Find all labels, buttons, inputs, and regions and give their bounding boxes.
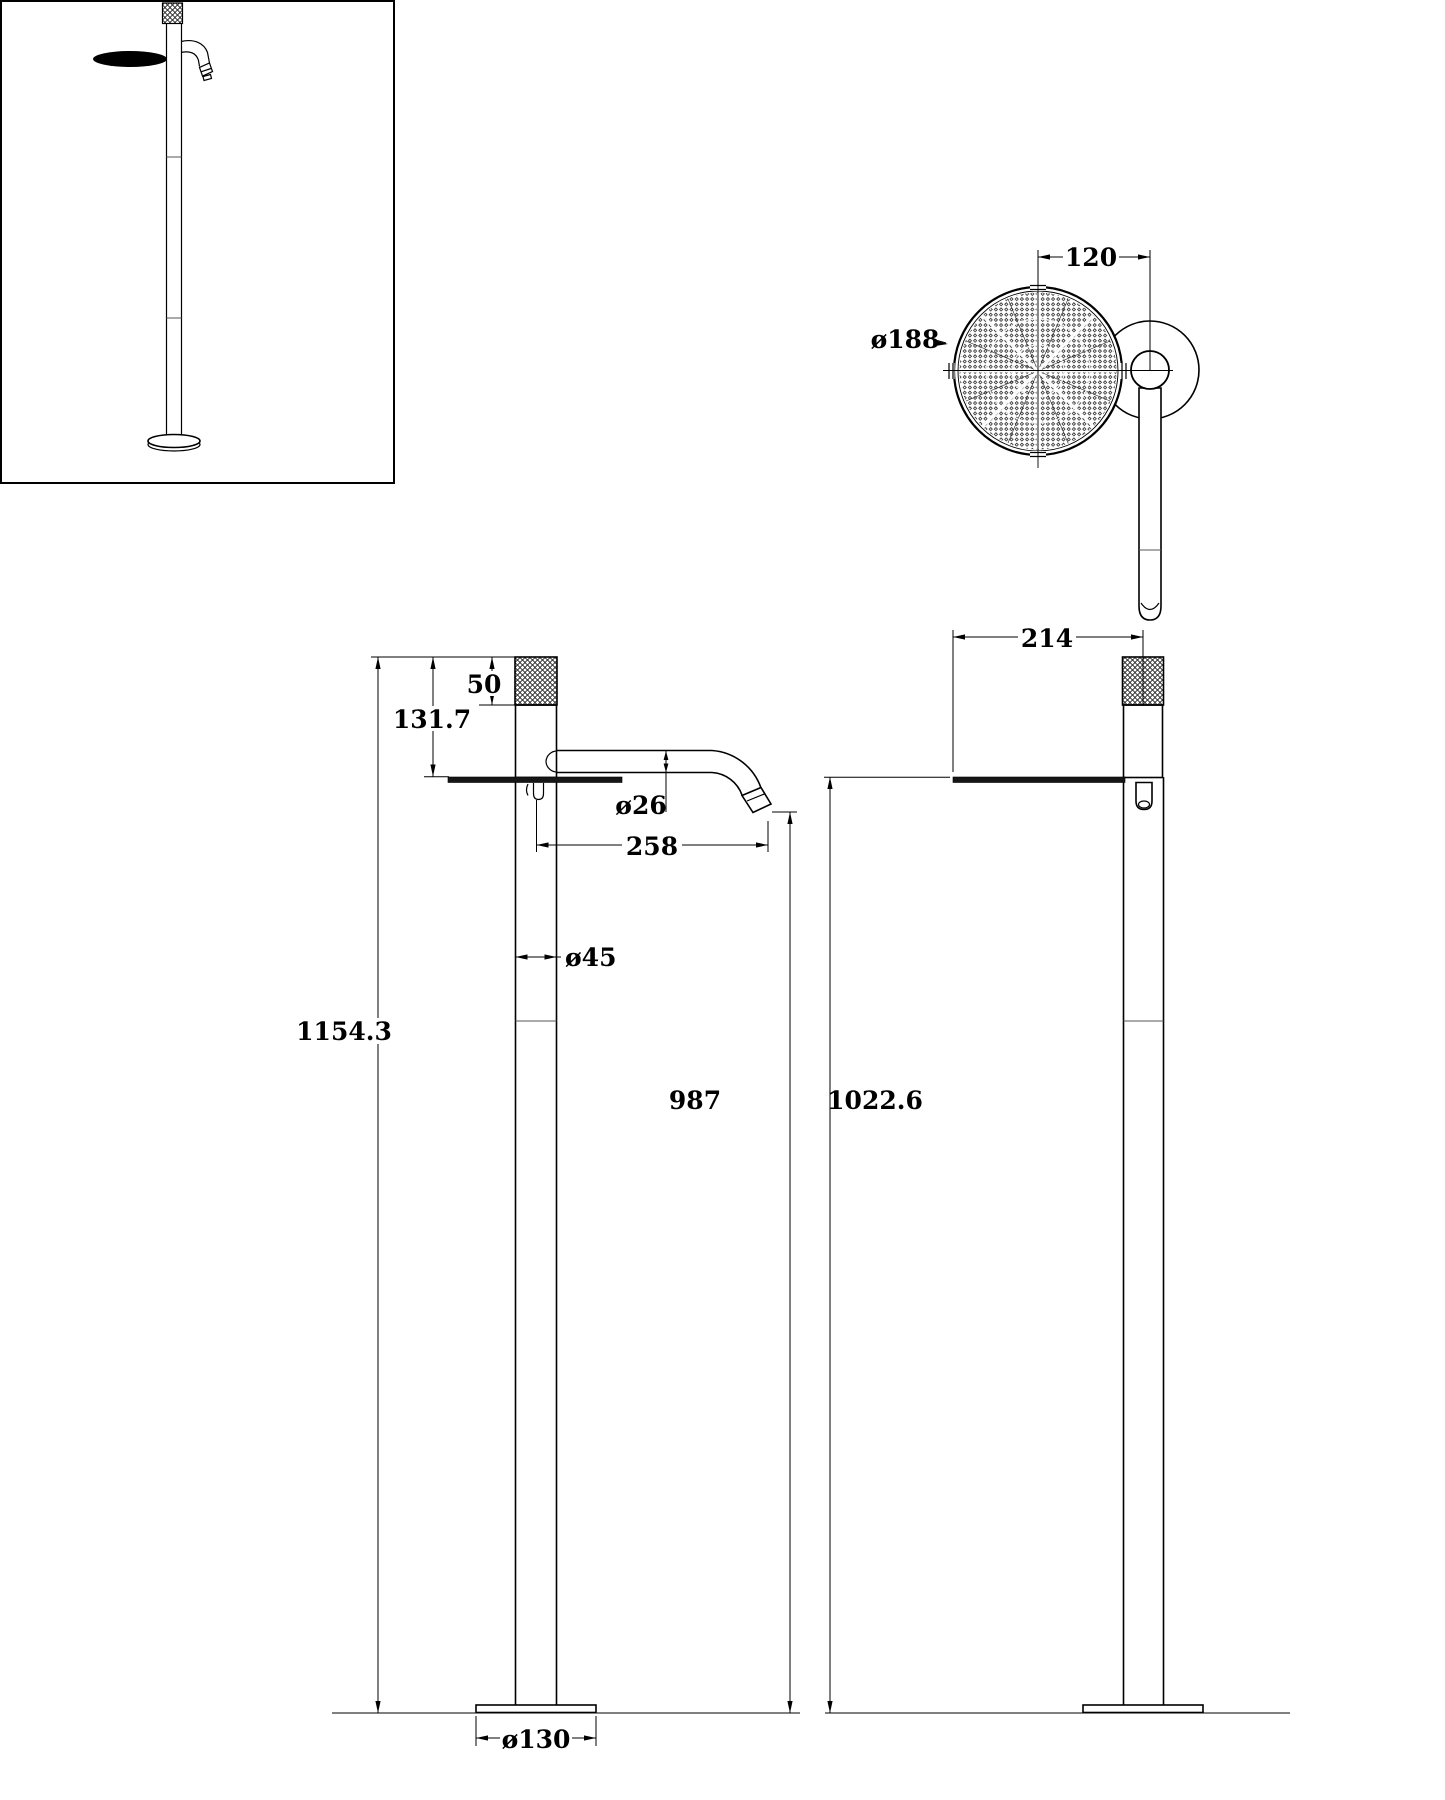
- perspective-handle-knurl: [163, 3, 183, 24]
- view-border-box: [1, 1, 394, 483]
- technical-drawing-page: 120 ø188: [0, 0, 1445, 1800]
- dim-label-1022-6: 1022.6: [827, 1086, 923, 1115]
- dim-label-26: ø26: [615, 791, 666, 820]
- front-column: [516, 777, 557, 1705]
- front-handle-knurl: [515, 657, 557, 705]
- perspective-view: [1, 1, 394, 483]
- dim-label-1154-3: 1154.3: [296, 1017, 392, 1046]
- dim-label-214: 214: [1021, 624, 1073, 653]
- dim-tray-diameter: ø188: [871, 325, 948, 354]
- perspective-column: [167, 24, 182, 438]
- front-spout-aerator: [742, 788, 771, 813]
- side-tray-bar: [953, 777, 1125, 783]
- dim-label-987: 987: [669, 1086, 721, 1115]
- side-column: [1124, 777, 1164, 1705]
- dim-label-188: ø188: [871, 325, 940, 354]
- dim-label-130: ø130: [502, 1725, 571, 1754]
- dim-label-131-7: 131.7: [393, 705, 471, 734]
- front-body: [516, 705, 557, 778]
- perspective-base: [148, 435, 200, 452]
- dim-label-50: 50: [467, 670, 502, 699]
- perspective-faucet: [93, 3, 213, 451]
- dim-upper-section: 131.7: [393, 657, 471, 777]
- top-view-tray-disc: [948, 284, 1128, 458]
- top-view-lever: [1139, 388, 1161, 620]
- dim-handle-length: 50: [464, 657, 515, 705]
- dim-label-45: ø45: [565, 943, 616, 972]
- dim-spout-diameter: ø26: [615, 751, 668, 820]
- side-lever: [1136, 783, 1152, 810]
- perspective-tray: [93, 51, 167, 67]
- front-tray-bar: [448, 777, 622, 783]
- side-body: [1124, 705, 1163, 778]
- front-view: 1154.3 131.7 50 ø26 258 ø45: [296, 657, 800, 1754]
- dim-label-258: 258: [626, 832, 678, 861]
- side-base-flange: [1083, 1705, 1203, 1713]
- dim-overall-depth: 214: [953, 624, 1143, 772]
- top-view: 120 ø188: [871, 243, 1199, 620]
- faucet-dimension-drawing: 120 ø188: [0, 0, 1445, 1800]
- dim-tray-top-height: 1022.6: [824, 777, 950, 1713]
- perspective-spout: [181, 41, 213, 81]
- dim-base-diameter: ø130: [476, 1716, 596, 1754]
- side-view: 214 1022.6: [824, 624, 1290, 1713]
- dim-column-diameter: ø45: [516, 943, 617, 972]
- dim-spout-outlet-height: 987: [669, 812, 797, 1713]
- front-lever: [527, 783, 544, 800]
- dim-label-120: 120: [1065, 243, 1117, 272]
- dim-overall-height: 1154.3: [296, 657, 515, 1713]
- front-base-flange: [476, 1705, 596, 1713]
